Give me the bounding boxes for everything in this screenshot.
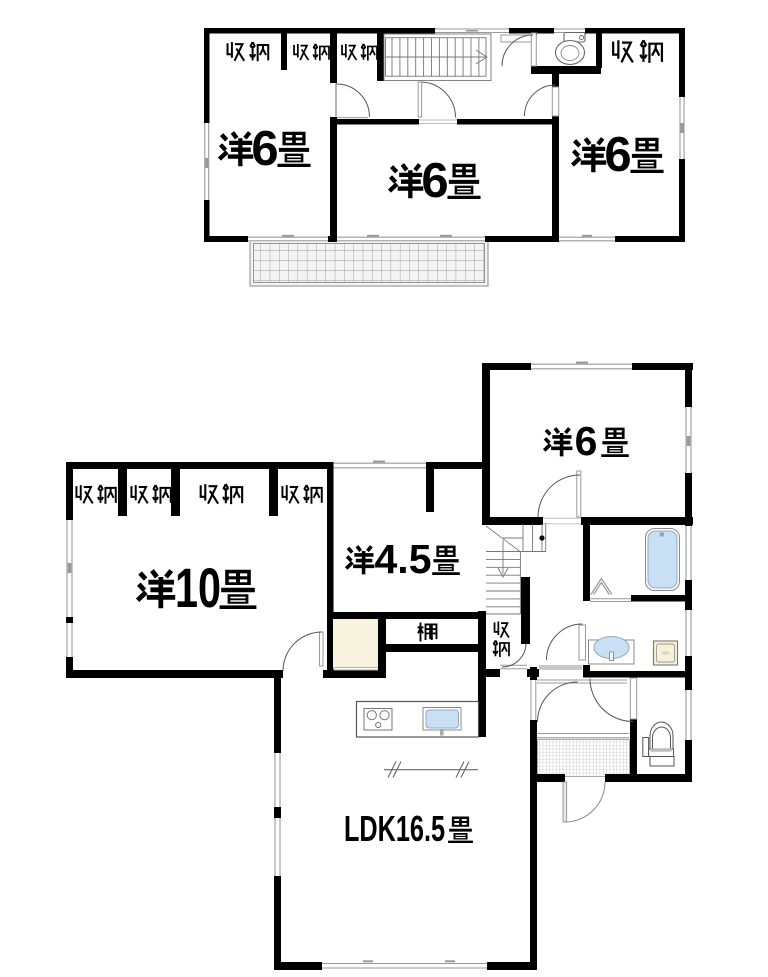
svg-text:6: 6: [575, 418, 598, 464]
svg-text:6: 6: [251, 122, 278, 176]
svg-text:6: 6: [421, 154, 448, 208]
svg-text:LDK16.5: LDK16.5: [344, 808, 445, 849]
svg-text:6: 6: [604, 128, 631, 182]
svg-text:10: 10: [175, 556, 221, 619]
svg-text:4.5: 4.5: [375, 536, 432, 582]
